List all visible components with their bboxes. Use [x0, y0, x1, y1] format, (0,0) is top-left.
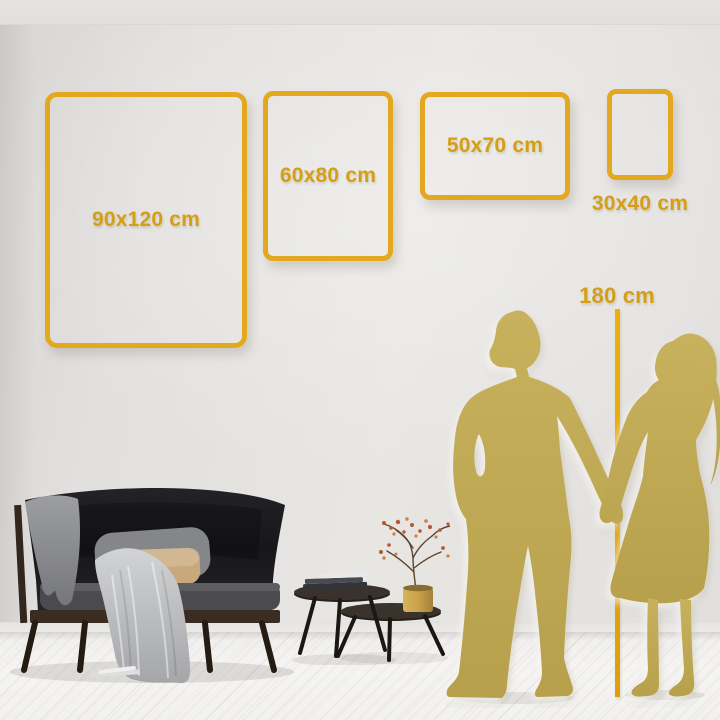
frame-50x70: 50x70 cm: [420, 92, 570, 200]
sofa-illustration: [5, 478, 305, 720]
frame-60x80-label: 60x80 cm: [280, 164, 376, 188]
coffee-tables-illustration: [278, 505, 450, 665]
ceiling: [0, 0, 720, 25]
frame-90x120-label: 90x120 cm: [92, 208, 200, 232]
frame-90x120: 90x120 cm: [45, 92, 247, 348]
frame-50x70-label: 50x70 cm: [447, 134, 543, 158]
frame-30x40-label: 30x40 cm: [560, 192, 720, 216]
frame-30x40: [607, 89, 673, 180]
size-guide-scene: 90x120 cm 60x80 cm 50x70 cm 30x40 cm 180…: [0, 0, 720, 720]
couple-silhouette: [445, 300, 720, 708]
frame-60x80: 60x80 cm: [263, 91, 393, 261]
